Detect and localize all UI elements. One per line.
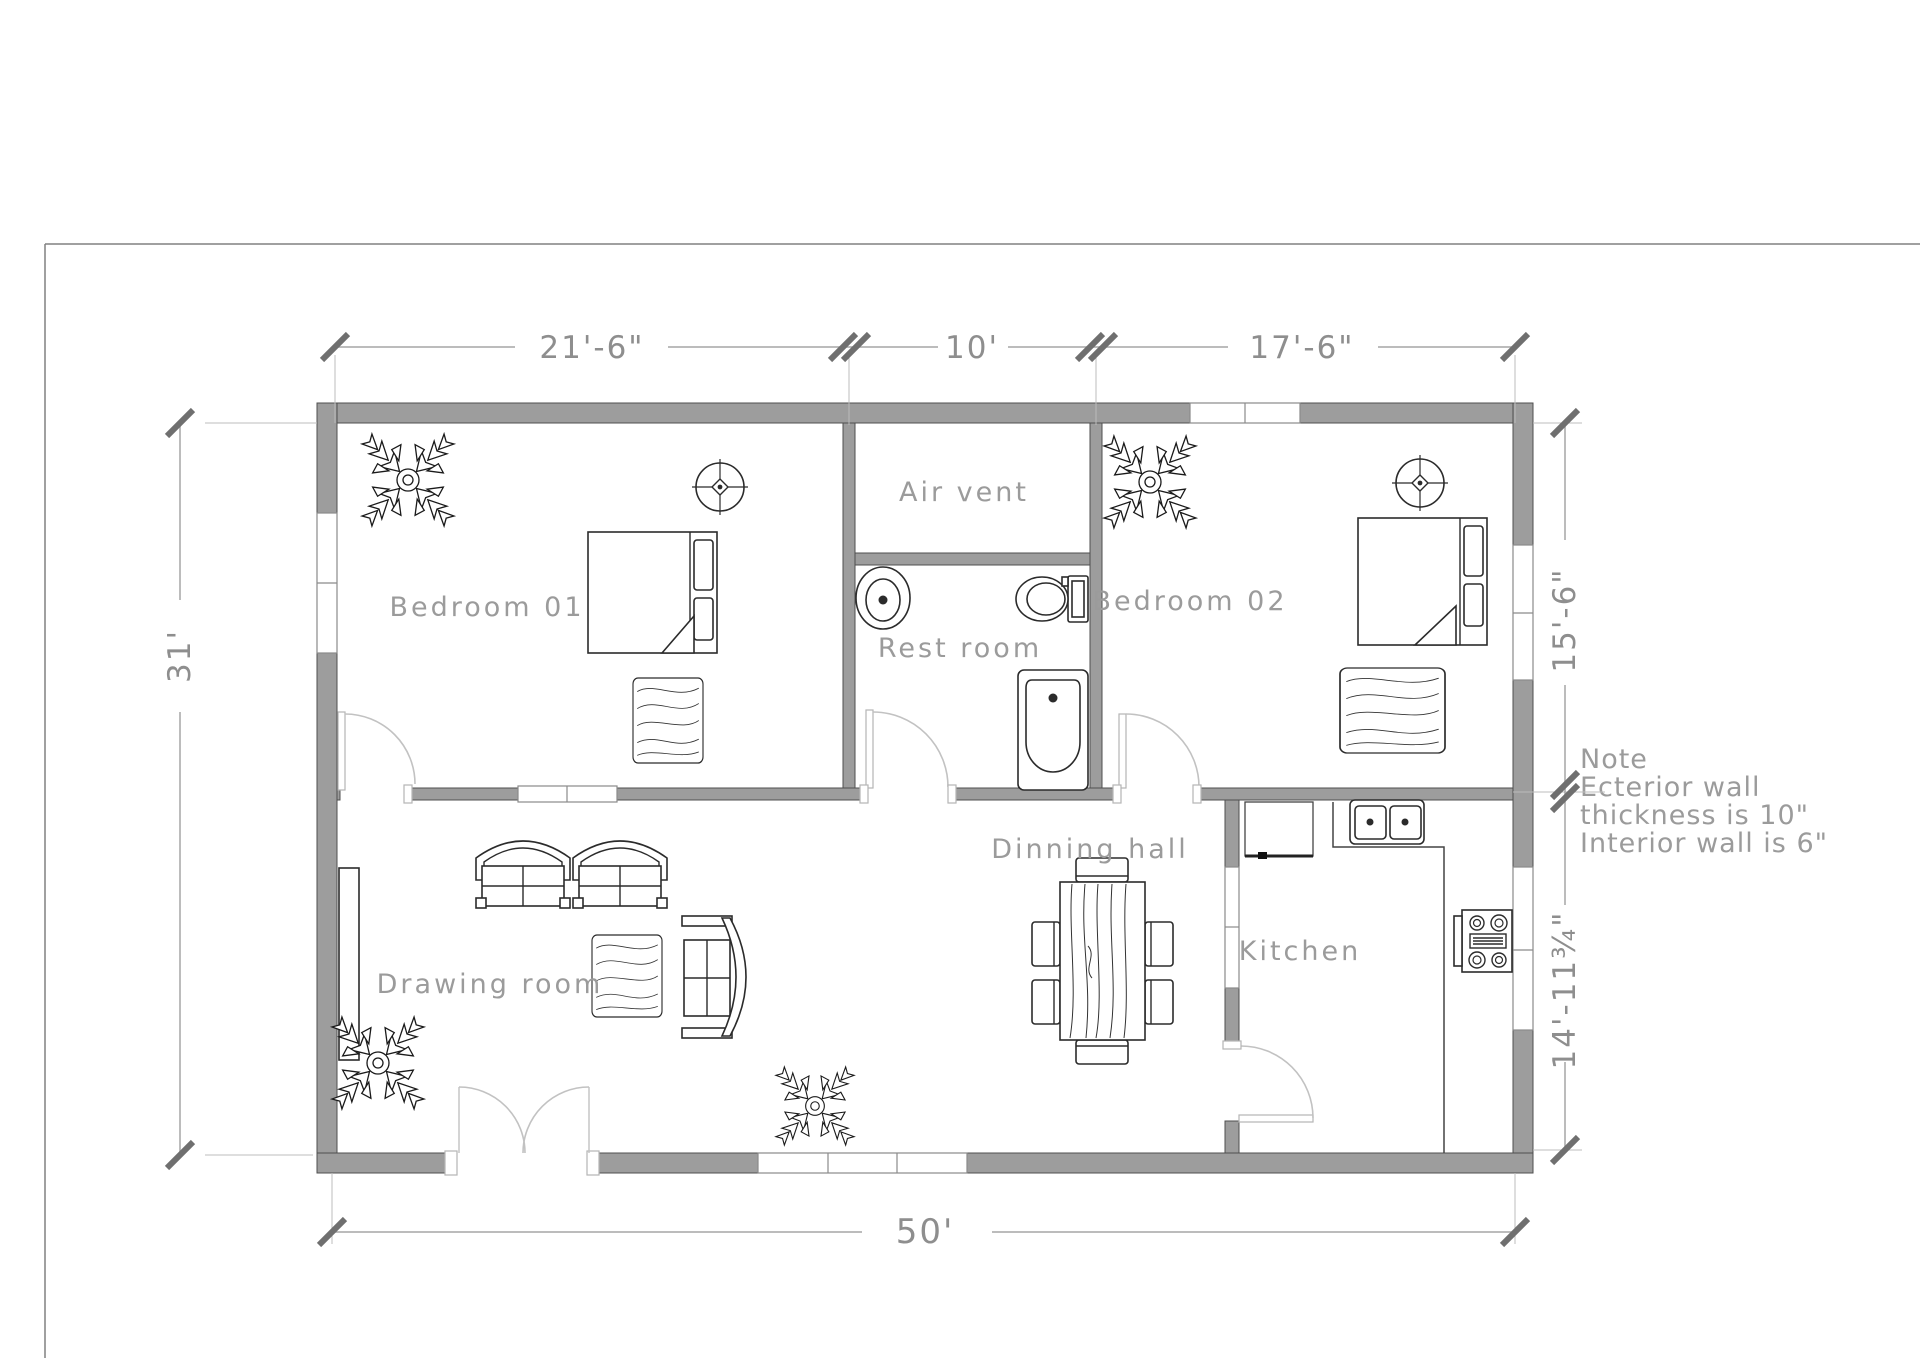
wall-horizontal [617, 788, 868, 800]
ceiling-fan-icon [692, 459, 748, 515]
dim-top-1: 21'-6" [539, 330, 644, 366]
wall-bedroom1-airvent [843, 423, 855, 788]
bedroom1-label: Bedroom 01 [389, 592, 584, 623]
dim-right-lower: 14'-11¾" [1547, 911, 1583, 1070]
dim-bottom: 50' [896, 1212, 955, 1252]
door-entrance-double [445, 1087, 599, 1175]
dim-right-upper: 15'-6" [1547, 567, 1583, 672]
stove-icon [1454, 910, 1512, 972]
dim-left: 31' [162, 629, 198, 683]
rug-icon [1340, 668, 1445, 753]
dim-top-3: 17'-6" [1249, 330, 1354, 366]
door-kitchen [1239, 1046, 1313, 1122]
toilet-icon [1016, 576, 1088, 622]
air-vent-label: Air vent [899, 477, 1029, 508]
dim-top-2: 10' [945, 330, 999, 366]
note-line: Interior wall is 6" [1580, 828, 1828, 859]
ceiling-fan-icon [1392, 455, 1448, 511]
wall-airvent-restroom [855, 553, 1090, 565]
drawing-room-label: Drawing room [377, 969, 604, 1000]
left-wall [317, 403, 337, 513]
note-line: Ecterior wall [1580, 772, 1761, 803]
note-line: thickness is 10" [1580, 800, 1809, 831]
wall-kitchen-partition [1225, 988, 1239, 1049]
window-right-kitchen [1513, 867, 1533, 1030]
plant-icon [323, 1008, 433, 1118]
top-wall [1300, 403, 1533, 423]
bottom-wall [590, 1153, 758, 1173]
rug-icon [633, 678, 703, 763]
kitchen-sink-icon [1350, 800, 1424, 844]
dining-table-icon [1032, 858, 1173, 1064]
bottom-wall [967, 1153, 1533, 1173]
door-bedroom2 [1119, 714, 1199, 788]
rest-room-label: Rest room [878, 633, 1042, 664]
left-wall [317, 653, 337, 1173]
wall-kitchen-partition [1225, 1121, 1239, 1153]
right-wall [1513, 1030, 1533, 1173]
plant-icon [353, 425, 463, 535]
window-bottom [758, 1153, 967, 1173]
top-wall [317, 403, 1190, 423]
wall-kitchen-partition [1225, 800, 1239, 867]
interior-walls [337, 423, 1513, 1153]
dimension-bottom: 50' [319, 1173, 1528, 1252]
window-top-bedroom2 [1190, 403, 1300, 423]
window-interior-bedroom1 [518, 786, 617, 802]
plant-icon [1095, 427, 1205, 537]
right-wall [1513, 403, 1533, 545]
window-left-bedroom1 [317, 513, 337, 653]
note-title: Note [1580, 744, 1648, 775]
sofa-icon [476, 841, 667, 908]
wall-horizontal [412, 788, 518, 800]
note-text: Note Ecterior wall thickness is 10" Inte… [1580, 744, 1828, 859]
floor-plan-drawing: Bedroom 01 Air vent Rest room Bedroom 02… [0, 0, 1920, 1358]
wall-horizontal [1193, 788, 1513, 800]
bed-icon [588, 532, 717, 653]
bedroom2-label: Bedroom 02 [1092, 586, 1287, 617]
plant-icon [768, 1059, 862, 1153]
bathtub-icon [1018, 670, 1088, 790]
bottom-wall [317, 1153, 453, 1173]
bed-icon [1358, 518, 1487, 645]
dimension-left: 31' [162, 410, 317, 1168]
floor-plan-page: Bedroom 01 Air vent Rest room Bedroom 02… [0, 0, 1920, 1358]
door-restroom [866, 710, 948, 788]
window-kitchen-partition [1225, 867, 1239, 988]
armchair-icon [682, 916, 746, 1038]
door-bedroom1 [338, 712, 415, 790]
kitchen-counter [1245, 802, 1444, 1153]
dining-hall-label: Dinning hall [991, 834, 1189, 865]
sink-icon [856, 567, 910, 629]
window-right-bedroom2 [1513, 545, 1533, 680]
right-wall [1513, 680, 1533, 867]
kitchen-label: Kitchen [1239, 936, 1361, 967]
